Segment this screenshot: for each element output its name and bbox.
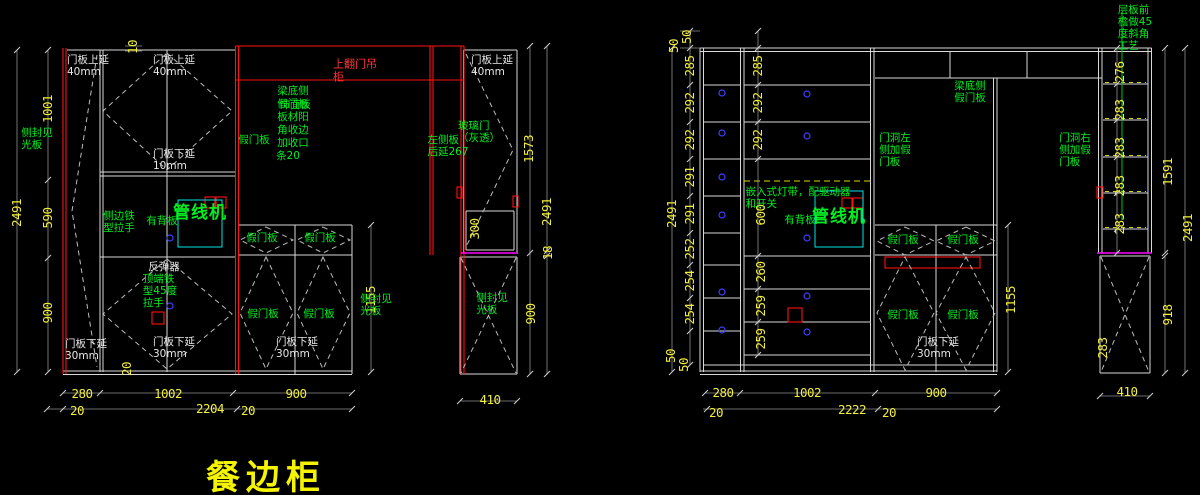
cabinet-linework <box>0 0 1200 495</box>
drawing-title: 餐边柜 <box>206 450 326 495</box>
right-view-linework <box>669 12 1188 412</box>
cad-drawing-canvas: 2491100159090010202801002900202204201573… <box>0 0 1200 495</box>
left-view-linework <box>14 43 550 412</box>
handle-groove <box>885 257 980 268</box>
pipeline-machine-box <box>815 191 863 247</box>
